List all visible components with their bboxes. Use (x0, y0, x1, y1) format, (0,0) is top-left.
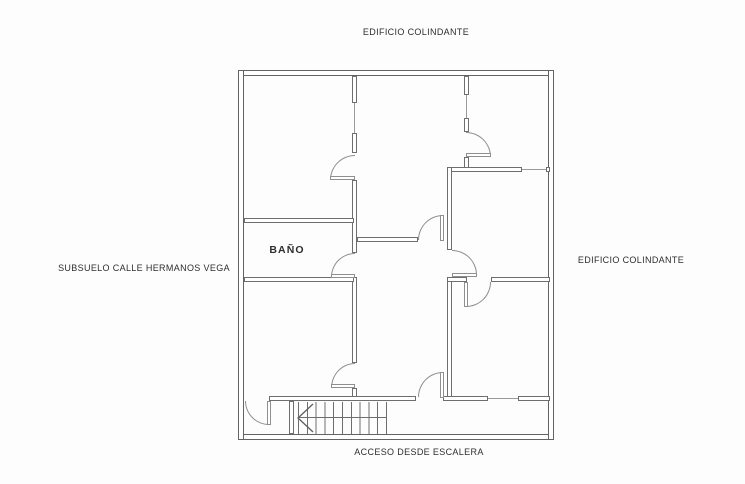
wall-corridor-north-right (518, 396, 550, 401)
outer-wall-bottom (238, 434, 554, 440)
wall-h3-right (491, 277, 550, 282)
door-leaf (440, 372, 444, 398)
door-leaf (331, 384, 355, 388)
wall-v3-upper (447, 167, 452, 250)
window-line (354, 103, 355, 133)
window-line (488, 398, 518, 399)
label-stair-access: ACCESO DESDE ESCALERA (354, 447, 483, 457)
door-swing-arc (466, 282, 491, 307)
wall-v2-jamb (464, 118, 469, 132)
stair-direction-arrow-icon (296, 403, 314, 433)
window-line (522, 169, 546, 170)
floor-plan: EDIFICIO COLINDANTE SUBSUELO CALLE HERMA… (0, 0, 745, 484)
wall-v3-lower (447, 277, 452, 398)
label-street-left: SUBSUELO CALLE HERMANOS VEGA (58, 263, 230, 273)
door-leaf (330, 176, 355, 180)
door-leaf (267, 401, 271, 425)
wall-nook-right (289, 401, 294, 434)
door-leaf (440, 215, 444, 241)
door-leaf (452, 273, 477, 277)
outer-wall-left (238, 70, 244, 440)
outer-wall-right (548, 70, 554, 440)
wall-v1-lower (352, 277, 357, 363)
label-bathroom: BAÑO (269, 244, 304, 256)
wall-corridor-north-mid (443, 396, 488, 401)
door-leaf (466, 153, 491, 157)
door-swing-arc-nook (245, 401, 269, 425)
wall-above-bathroom (244, 218, 354, 223)
outer-wall-top (238, 70, 554, 76)
wall-v1-top (352, 76, 357, 103)
wall-v1-jamb (352, 133, 357, 153)
door-leaf (331, 274, 355, 278)
door-swing-arc (452, 250, 477, 275)
window-line (466, 95, 467, 118)
door-leaf (464, 282, 468, 307)
wall-v1-mid (352, 180, 357, 253)
wall-h2-end (546, 167, 550, 172)
wall-h2 (447, 167, 522, 172)
label-adjacent-building-right: EDIFICIO COLINDANTE (578, 255, 684, 265)
label-adjacent-building-top: EDIFICIO COLINDANTE (363, 27, 469, 37)
wall-v2-top (464, 76, 469, 95)
wall-h1-hall-north (357, 237, 418, 242)
